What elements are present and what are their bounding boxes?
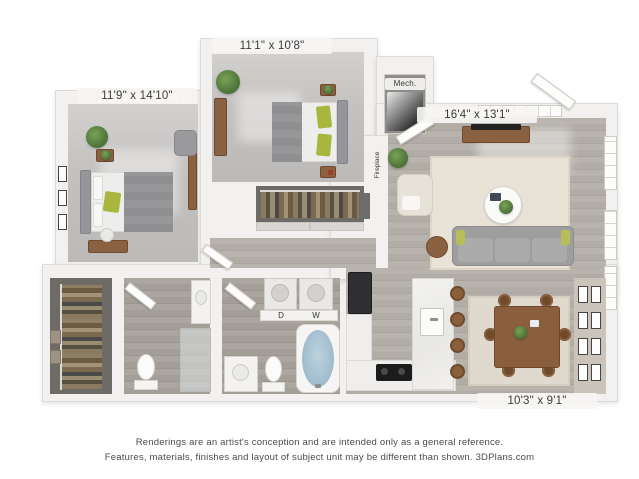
gallery-frame-2 xyxy=(591,286,601,303)
bedroom1-pillow-green xyxy=(103,191,122,213)
bathroom2-toilet-tank xyxy=(262,382,285,392)
bar-stool-1 xyxy=(450,286,465,301)
bedroom2-pillow-green-2 xyxy=(316,133,332,156)
bedroom2-dimension-label: 11'1" x 10'8" xyxy=(212,38,332,54)
washer-door xyxy=(307,284,325,302)
living-dimension-label: 16'4" x 13'1" xyxy=(417,107,537,123)
closet1-basket-2 xyxy=(50,350,61,364)
gallery-frame-7 xyxy=(578,364,588,381)
bathroom1-toilet-tank xyxy=(134,380,158,390)
bedroom1-desk-chair xyxy=(100,228,114,242)
closet2-sliding-door-2 xyxy=(310,222,364,231)
closet2-clothes xyxy=(261,192,359,218)
bedroom1-pillow-white-1 xyxy=(93,176,103,200)
disclaimer-line-2: Features, materials, finishes and layout… xyxy=(0,452,639,463)
dining-table xyxy=(494,306,560,368)
bedroom1-bed-headboard xyxy=(80,170,91,234)
bedroom2-nightstand-plant xyxy=(324,85,333,94)
laundry-ledge xyxy=(260,310,338,321)
bedroom2-bed-headboard xyxy=(337,100,348,164)
bedroom2-bed-duvet xyxy=(272,102,302,162)
bathroom1-shower xyxy=(180,328,211,392)
closet1-clothes xyxy=(62,285,102,389)
living-side-table xyxy=(426,236,448,258)
gallery-frame-6 xyxy=(591,338,601,355)
stove-burner-1 xyxy=(381,368,388,375)
floorplan-canvas: Mech. Fireplace xyxy=(0,0,639,479)
bedroom1-nightstand-plant xyxy=(101,150,111,160)
hallway-floor xyxy=(210,238,376,268)
mech-label: Mech. xyxy=(385,78,425,90)
disclaimer-line-1: Renderings are an artist's conception an… xyxy=(0,437,639,448)
bedroom1-wall-art-1 xyxy=(58,166,67,182)
island-sink xyxy=(420,308,444,336)
bedroom1-pillow-white-2 xyxy=(93,203,103,227)
living-armchair-throw xyxy=(402,196,420,210)
gallery-frame-1 xyxy=(578,286,588,303)
bedroom2-dresser xyxy=(214,98,227,156)
stove-burner-2 xyxy=(398,368,405,375)
washer-label: W xyxy=(310,310,322,321)
bedroom1-bed-duvet xyxy=(124,172,173,232)
fridge xyxy=(348,272,372,314)
living-entry-plant xyxy=(388,148,408,168)
bathroom2-toilet-bowl xyxy=(265,356,282,382)
closet1-basket-1 xyxy=(50,330,61,344)
floorplan-page: { "title": "3D apartment floor plan rend… xyxy=(0,0,639,479)
bedroom1-wall-art-2 xyxy=(58,190,67,206)
bathroom1-sink xyxy=(195,290,207,305)
dryer-label: D xyxy=(275,310,287,321)
living-right-window-2 xyxy=(604,210,617,260)
gallery-frame-4 xyxy=(591,312,601,329)
bedroom1-plant xyxy=(86,126,108,148)
island-faucet xyxy=(430,318,438,321)
bar-stool-4 xyxy=(450,364,465,379)
bathroom1-toilet-bowl xyxy=(137,354,155,380)
bar-stool-2 xyxy=(450,312,465,327)
bedroom1-dresser xyxy=(188,152,197,210)
dining-dimension-label: 10'3" x 9'1" xyxy=(477,393,597,409)
dining-table-plant xyxy=(514,326,527,339)
coffee-table-book xyxy=(490,193,501,201)
bathroom2-sink xyxy=(232,364,249,381)
coffee-table-plant xyxy=(499,200,513,214)
dryer-door xyxy=(271,284,289,302)
sofa-cushion-2 xyxy=(495,238,530,262)
bedroom1-desk xyxy=(88,240,128,253)
bathtub-water xyxy=(302,330,334,387)
bedroom1-dimension-label: 11'9" x 14'10" xyxy=(77,88,197,104)
bedroom1-wall-art-3 xyxy=(58,214,67,230)
bedroom2-pillow-green-1 xyxy=(316,105,332,128)
bedroom1-armchair xyxy=(174,130,197,156)
bedroom2-plant xyxy=(216,70,240,94)
bar-stool-3 xyxy=(450,338,465,353)
tv xyxy=(471,124,521,130)
dining-table-dish xyxy=(530,320,539,327)
sofa-pillow-green-2 xyxy=(561,230,570,245)
gallery-frame-3 xyxy=(578,312,588,329)
bedroom2-red-accent xyxy=(328,170,333,175)
fireplace-label: Fireplace xyxy=(373,145,383,185)
closet2-sliding-door-1 xyxy=(256,222,310,231)
sofa-pillow-green-1 xyxy=(456,230,465,245)
living-right-window-1 xyxy=(604,136,617,190)
gallery-frame-5 xyxy=(578,338,588,355)
gallery-frame-8 xyxy=(591,364,601,381)
bathtub-faucet xyxy=(315,384,321,388)
